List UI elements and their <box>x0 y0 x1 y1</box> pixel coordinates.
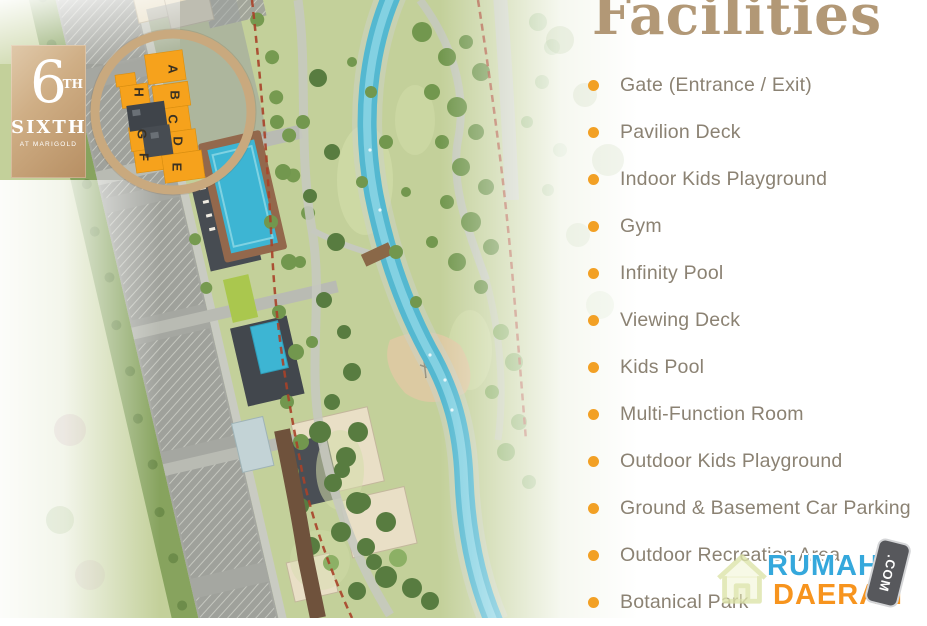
bullet-icon <box>588 597 599 608</box>
facility-item: Kids Pool <box>588 344 918 391</box>
bullet-icon <box>588 221 599 232</box>
site-map-illustration: A B C D E H G F <box>0 0 660 618</box>
block-label-a: A <box>166 64 181 74</box>
block-label-d: D <box>171 136 186 145</box>
block-label-f: F <box>137 153 152 161</box>
facility-item: Outdoor Kids Playground <box>588 438 918 485</box>
bullet-icon <box>588 503 599 514</box>
facility-label: Indoor Kids Playground <box>620 168 827 191</box>
logo-number: 6TH <box>30 53 67 111</box>
facility-label: Outdoor Kids Playground <box>620 450 842 473</box>
block-label-e: E <box>170 163 185 172</box>
block-label-b: B <box>168 90 183 99</box>
watermark-domain-label: .COM <box>876 553 900 593</box>
facility-label: Gate (Entrance / Exit) <box>620 74 812 97</box>
watermark-domain-tag: .COM <box>864 537 913 609</box>
logo-badge: 6TH SIXTH AT MARIGOLD <box>11 45 86 178</box>
bullet-icon <box>588 268 599 279</box>
facility-item: Indoor Kids Playground <box>588 156 918 203</box>
facility-item: Viewing Deck <box>588 297 918 344</box>
house-icon <box>711 546 773 610</box>
facilities-title: Facilities <box>592 0 882 47</box>
block-label-c: C <box>166 114 181 124</box>
facility-label: Pavilion Deck <box>620 121 741 144</box>
block-label-h: H <box>132 87 147 96</box>
facility-item: Pavilion Deck <box>588 109 918 156</box>
facility-label: Multi-Function Room <box>620 403 804 426</box>
bullet-icon <box>588 409 599 420</box>
watermark: RUMAH DAERAH .COM <box>705 538 927 618</box>
bullet-icon <box>588 174 599 185</box>
facility-item: Gym <box>588 203 918 250</box>
facility-label: Kids Pool <box>620 356 704 379</box>
facility-label: Infinity Pool <box>620 262 723 285</box>
logo-tagline: AT MARIGOLD <box>11 141 86 148</box>
facility-label: Viewing Deck <box>620 309 740 332</box>
logo-number-suffix: TH <box>63 55 83 113</box>
bullet-icon <box>588 362 599 373</box>
facility-item: Multi-Function Room <box>588 391 918 438</box>
bullet-icon <box>588 315 599 326</box>
facility-label: Gym <box>620 215 662 238</box>
bullet-icon <box>588 550 599 561</box>
logo-name: SIXTH <box>11 117 86 138</box>
facility-label: Ground & Basement Car Parking <box>620 497 911 520</box>
facility-item: Ground & Basement Car Parking <box>588 485 918 532</box>
brochure-page: A B C D E H G F 6TH SIXTH AT MARIGOLD Fa… <box>0 0 927 618</box>
block-label-g: G <box>135 129 150 139</box>
bullet-icon <box>588 80 599 91</box>
facility-item: Infinity Pool <box>588 250 918 297</box>
facility-item: Gate (Entrance / Exit) <box>588 62 918 109</box>
bullet-icon <box>588 456 599 467</box>
bullet-icon <box>588 127 599 138</box>
